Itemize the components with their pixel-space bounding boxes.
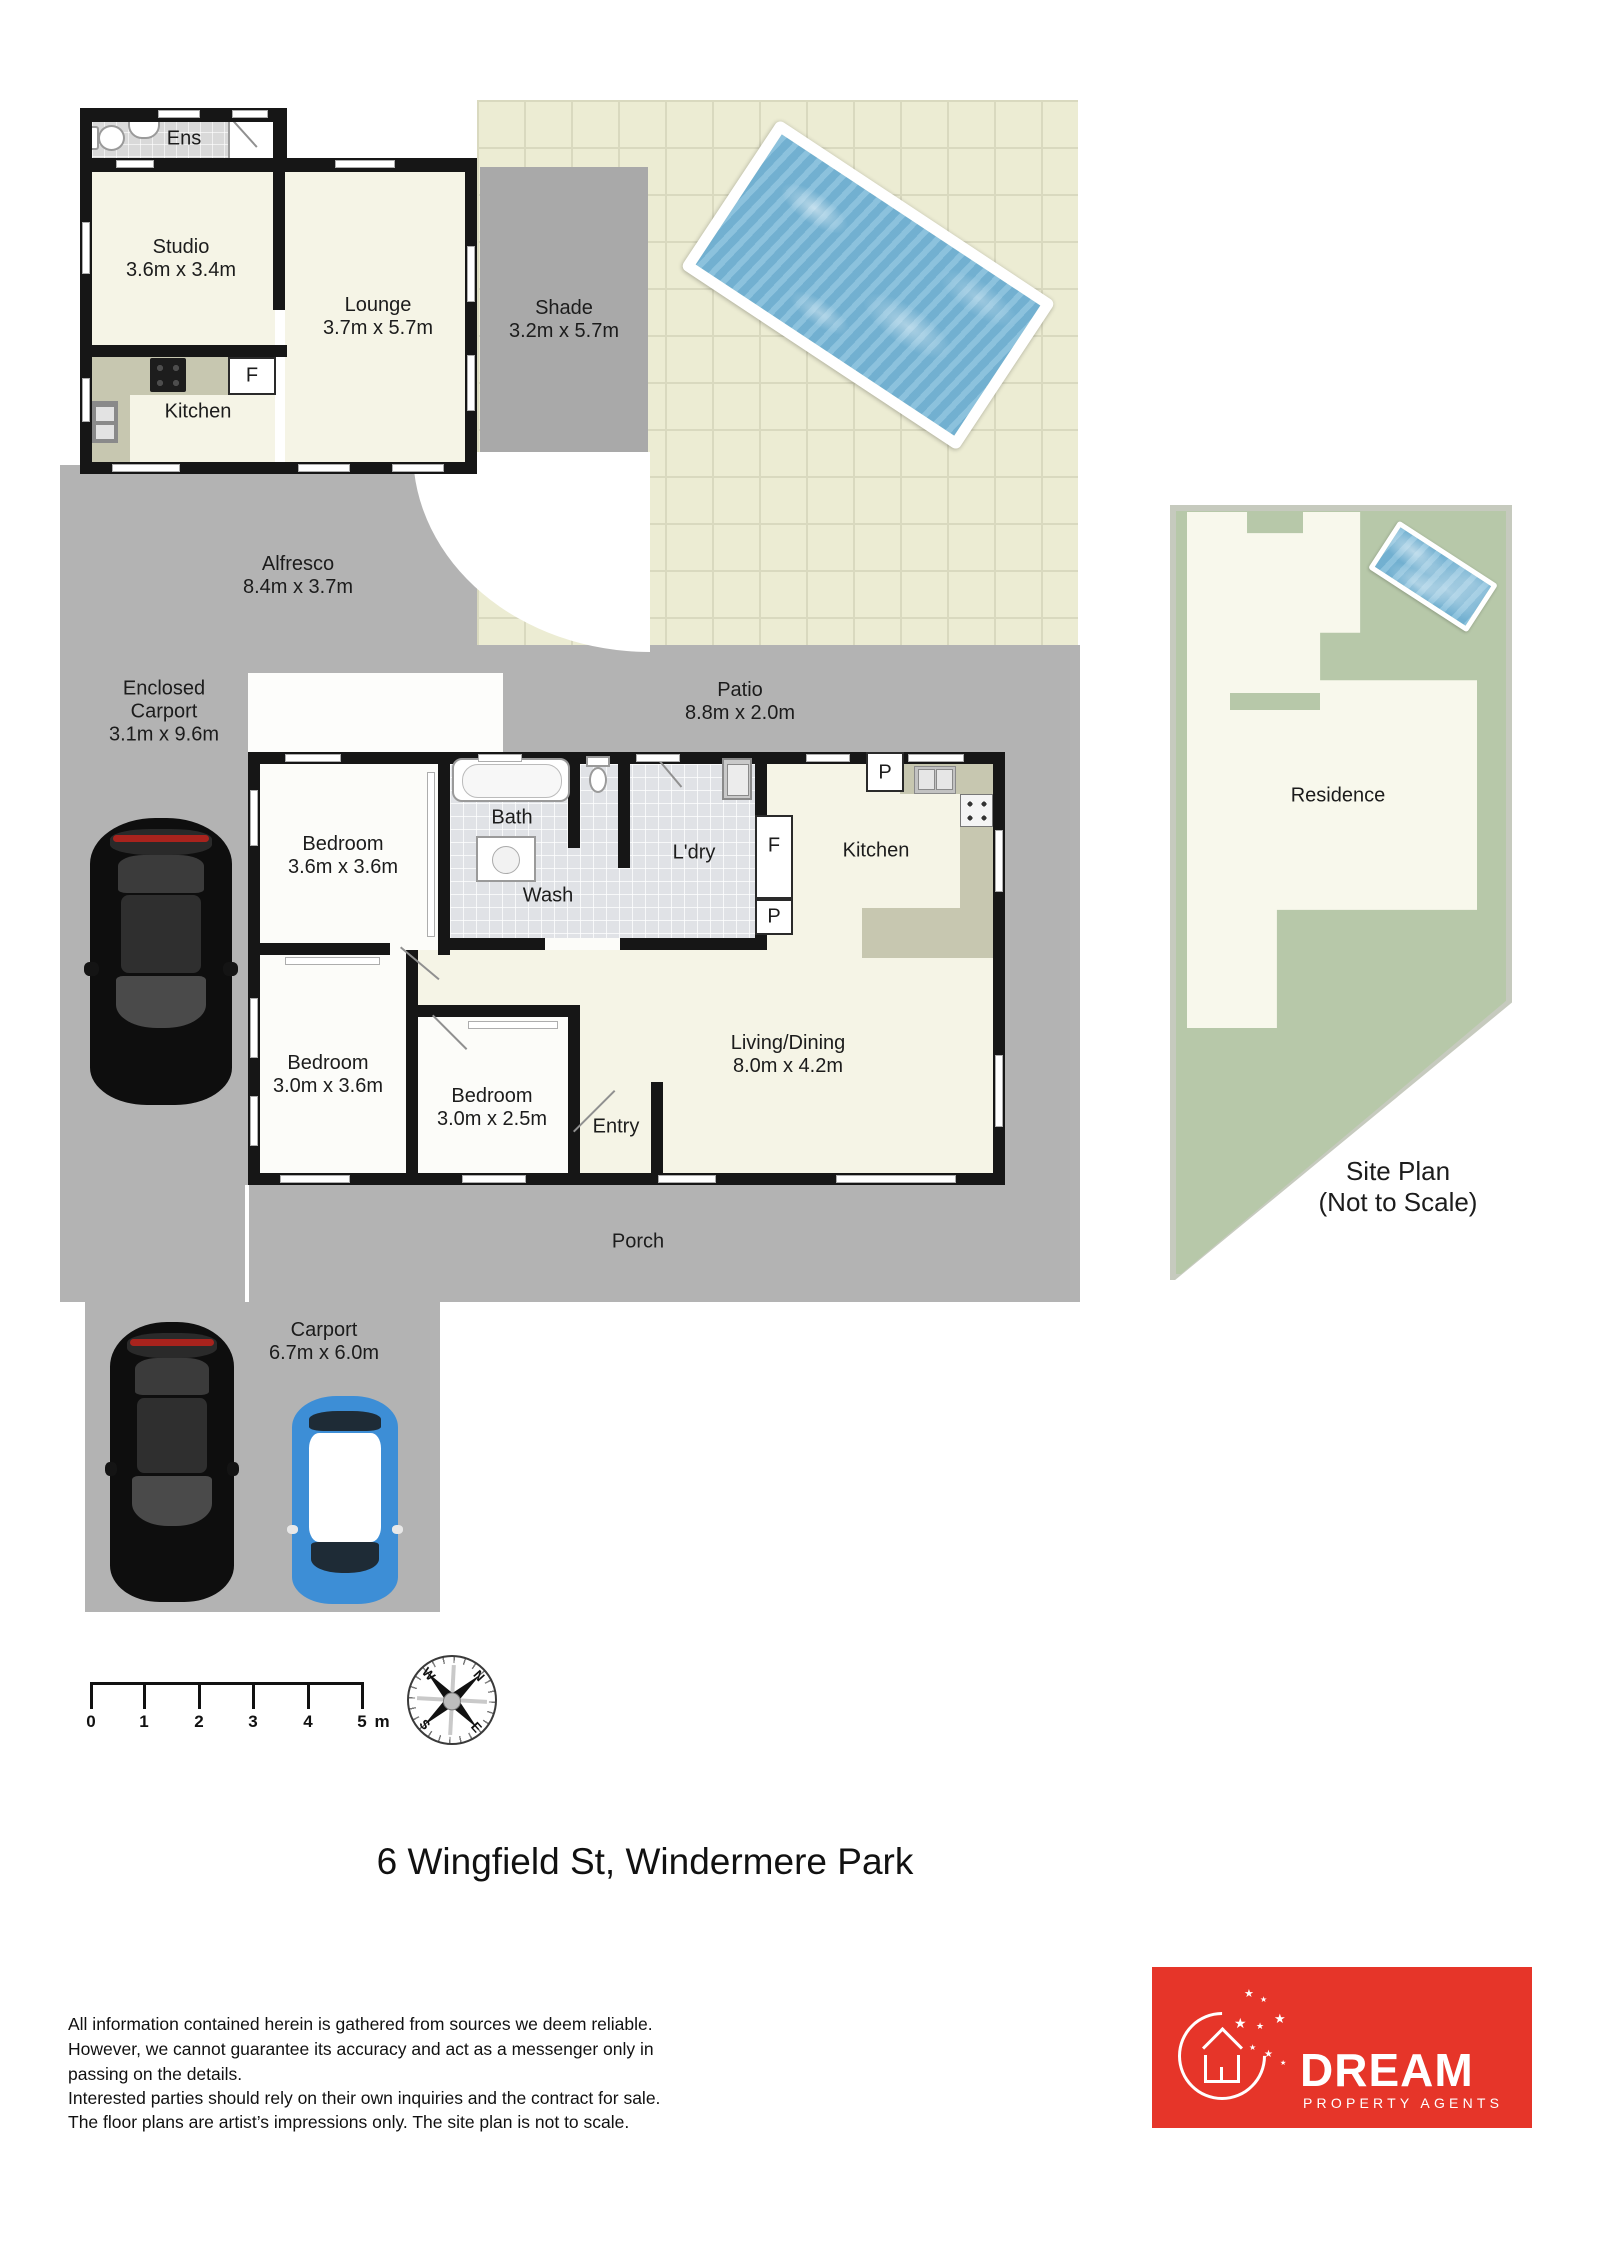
wet-area-wall-bottom-a	[438, 938, 545, 950]
laundry-tub-basin	[727, 764, 749, 796]
wet-area-wall-bottom-b	[620, 938, 767, 950]
car-windshield	[116, 976, 207, 1028]
window	[250, 1096, 258, 1146]
bedroom1-wall-right	[438, 752, 450, 955]
bath-label: Bath	[491, 807, 532, 830]
scale-tick	[90, 1682, 93, 1709]
bedroom1-label: Bedroom3.6m x 3.6m	[288, 833, 398, 879]
bedroom3-wall-top	[418, 1005, 580, 1017]
door-gap	[116, 160, 154, 168]
toilet-bowl	[98, 125, 125, 151]
bedroom2-robe-doors	[285, 957, 380, 965]
kitchen-counter-right	[960, 764, 993, 912]
disclaimer-line: The floor plans are artist’s impressions…	[68, 2110, 629, 2135]
scale-number: 5	[352, 1712, 372, 1732]
kitchen-sink-basin-1	[918, 769, 935, 790]
window	[232, 110, 268, 118]
bedroom3-wall-right	[568, 1017, 580, 1185]
car-mirror	[84, 962, 98, 976]
residence-label: Residence	[1291, 785, 1386, 808]
page-title: 6 Wingfield St, Windermere Park	[95, 1841, 1195, 1883]
living-dining-label: Living/Dining8.0m x 4.2m	[731, 1032, 846, 1078]
bedroom2-wall-right	[406, 950, 418, 1185]
compass-rose: N E S W	[407, 1655, 497, 1745]
window	[467, 246, 475, 302]
window	[836, 1175, 956, 1183]
window	[298, 464, 350, 472]
vanity-basin	[492, 846, 520, 874]
kitchen-stove	[960, 794, 993, 827]
scale-tick	[361, 1682, 364, 1709]
window	[112, 464, 180, 472]
wc-toilet-bowl	[589, 767, 607, 793]
window	[636, 754, 680, 762]
shade-label: Shade3.2m x 5.7m	[509, 297, 619, 343]
studio-wall-right	[465, 158, 477, 474]
wash-label: Wash	[523, 885, 573, 908]
logo-house-door-icon	[1220, 2067, 1223, 2083]
car-roof	[137, 1398, 206, 1474]
car-rear-window	[118, 855, 203, 892]
laundry-label: L'dry	[673, 842, 716, 865]
logo-tagline-text: PROPERTY AGENTS	[1303, 2095, 1503, 2111]
door-gap	[478, 754, 522, 762]
car-windshield	[311, 1542, 379, 1573]
window	[462, 1175, 526, 1183]
star-icon: ★	[1274, 2011, 1286, 2027]
car-taillights	[113, 835, 210, 842]
star-icon: ★	[1264, 2049, 1273, 2060]
star-icon: ★	[1256, 2021, 1264, 2032]
logo-brand-text: DREAM	[1300, 2043, 1474, 2097]
window	[280, 1175, 350, 1183]
lounge-label: Lounge3.7m x 5.7m	[323, 294, 433, 340]
porch-carport-divider	[245, 1185, 249, 1302]
scale-tick	[252, 1682, 255, 1709]
bedroom3-label: Bedroom3.0m x 2.5m	[437, 1085, 547, 1131]
window	[806, 754, 850, 762]
enclosed-carport-label: EnclosedCarport 3.1m x 9.6m	[109, 678, 219, 747]
studio-kitchen-wall	[80, 345, 287, 357]
scale-number: 3	[243, 1712, 263, 1732]
pantry-bottom-label: P	[767, 906, 780, 929]
verandah-area	[248, 673, 503, 753]
window	[82, 222, 90, 274]
compass-inner: N E S W	[388, 1636, 515, 1763]
porch-area	[60, 1173, 1080, 1302]
studio-fridge-label: F	[246, 365, 258, 388]
patio-label: Patio8.8m x 2.0m	[685, 679, 795, 725]
disclaimer-line: All information contained herein is gath…	[68, 2012, 653, 2037]
studio-lounge-divider	[273, 158, 285, 310]
pantry-top-label: P	[878, 762, 891, 785]
wc-toilet-cistern	[586, 756, 610, 767]
car-blue	[292, 1396, 398, 1604]
site-plan-notch	[1230, 693, 1320, 710]
scale-unit: m	[372, 1712, 392, 1732]
floor-plan-page: Ens Studio3.6m x 3.4m Lounge3.7m x 5.7m …	[0, 0, 1600, 2263]
car-roof	[121, 895, 201, 972]
car-mirror	[227, 1462, 239, 1476]
window	[158, 110, 200, 118]
scale-number: 4	[298, 1712, 318, 1732]
fridge-label: F	[768, 835, 780, 858]
window	[285, 754, 341, 762]
car-taillights	[130, 1339, 214, 1346]
car-roof	[309, 1433, 381, 1541]
star-icon: ★	[1234, 2015, 1247, 2032]
kitchen-sink-basin-2	[936, 769, 953, 790]
car-rear-window	[309, 1411, 381, 1432]
studio-sink-basin-2	[95, 424, 115, 440]
scale-tick	[307, 1682, 310, 1709]
alfresco-label: Alfresco8.4m x 3.7m	[243, 553, 353, 599]
agency-logo: ★ ★ ★ ★ ★ ★ ★ ★ DREAM PROPERTY AGENTS	[1152, 1967, 1532, 2128]
star-icon: ★	[1244, 1987, 1254, 2000]
scale-tick	[198, 1682, 201, 1709]
bedroom2-label: Bedroom3.0m x 3.6m	[273, 1052, 383, 1098]
disclaimer-line: Interested parties should rely on their …	[68, 2086, 660, 2111]
bedroom3-robe-doors	[468, 1021, 558, 1029]
car-mirror	[223, 962, 237, 976]
kitchen-peninsula	[862, 908, 993, 958]
entry-wall	[651, 1082, 663, 1185]
carport-label: Carport6.7m x 6.0m	[269, 1319, 379, 1365]
car-windshield	[132, 1476, 211, 1526]
entry-door-gap	[658, 1175, 716, 1183]
entry-label: Entry	[593, 1116, 640, 1139]
disclaimer-line: However, we cannot guarantee its accurac…	[68, 2037, 654, 2062]
studio-stove	[150, 358, 186, 392]
porch-label: Porch	[612, 1231, 664, 1254]
window	[392, 464, 444, 472]
bedroom1-wall-bottom	[248, 943, 390, 955]
wc-wall-2	[618, 752, 630, 868]
scale-number: 1	[134, 1712, 154, 1732]
scale-bar-line	[90, 1682, 364, 1685]
car-mirror	[105, 1462, 117, 1476]
scale-tick	[143, 1682, 146, 1709]
star-icon: ★	[1249, 2043, 1256, 2052]
window	[995, 1055, 1003, 1127]
window	[250, 790, 258, 846]
scale-bar: 0 1 2 3 4 5 m	[90, 1682, 390, 1734]
window	[467, 355, 475, 411]
scale-number: 2	[189, 1712, 209, 1732]
studio-label: Studio3.6m x 3.4m	[126, 236, 236, 282]
car-mirror	[392, 1525, 404, 1534]
star-icon: ★	[1260, 1995, 1267, 2004]
bedroom1-robe-doors	[427, 772, 435, 937]
car-rear	[110, 829, 212, 855]
studio-sink-basin-1	[95, 406, 115, 422]
car-black-carport	[110, 1322, 234, 1602]
ensuite-label: Ens	[167, 128, 201, 151]
bathtub-inner	[462, 764, 562, 798]
window	[908, 754, 964, 762]
window	[250, 998, 258, 1058]
window	[995, 830, 1003, 892]
disclaimer-line: passing on the details.	[68, 2062, 242, 2087]
car-mirror	[287, 1525, 299, 1534]
star-icon: ★	[1280, 2059, 1286, 2067]
window	[82, 378, 90, 422]
scale-number: 0	[81, 1712, 101, 1732]
studio-kitchen-label: Kitchen	[165, 401, 232, 424]
car-rear-window	[135, 1358, 209, 1394]
car-black-enclosed	[90, 818, 232, 1105]
site-plan-caption: Site Plan(Not to Scale)	[1319, 1156, 1478, 1218]
kitchen-label: Kitchen	[843, 840, 910, 863]
window	[335, 160, 395, 168]
